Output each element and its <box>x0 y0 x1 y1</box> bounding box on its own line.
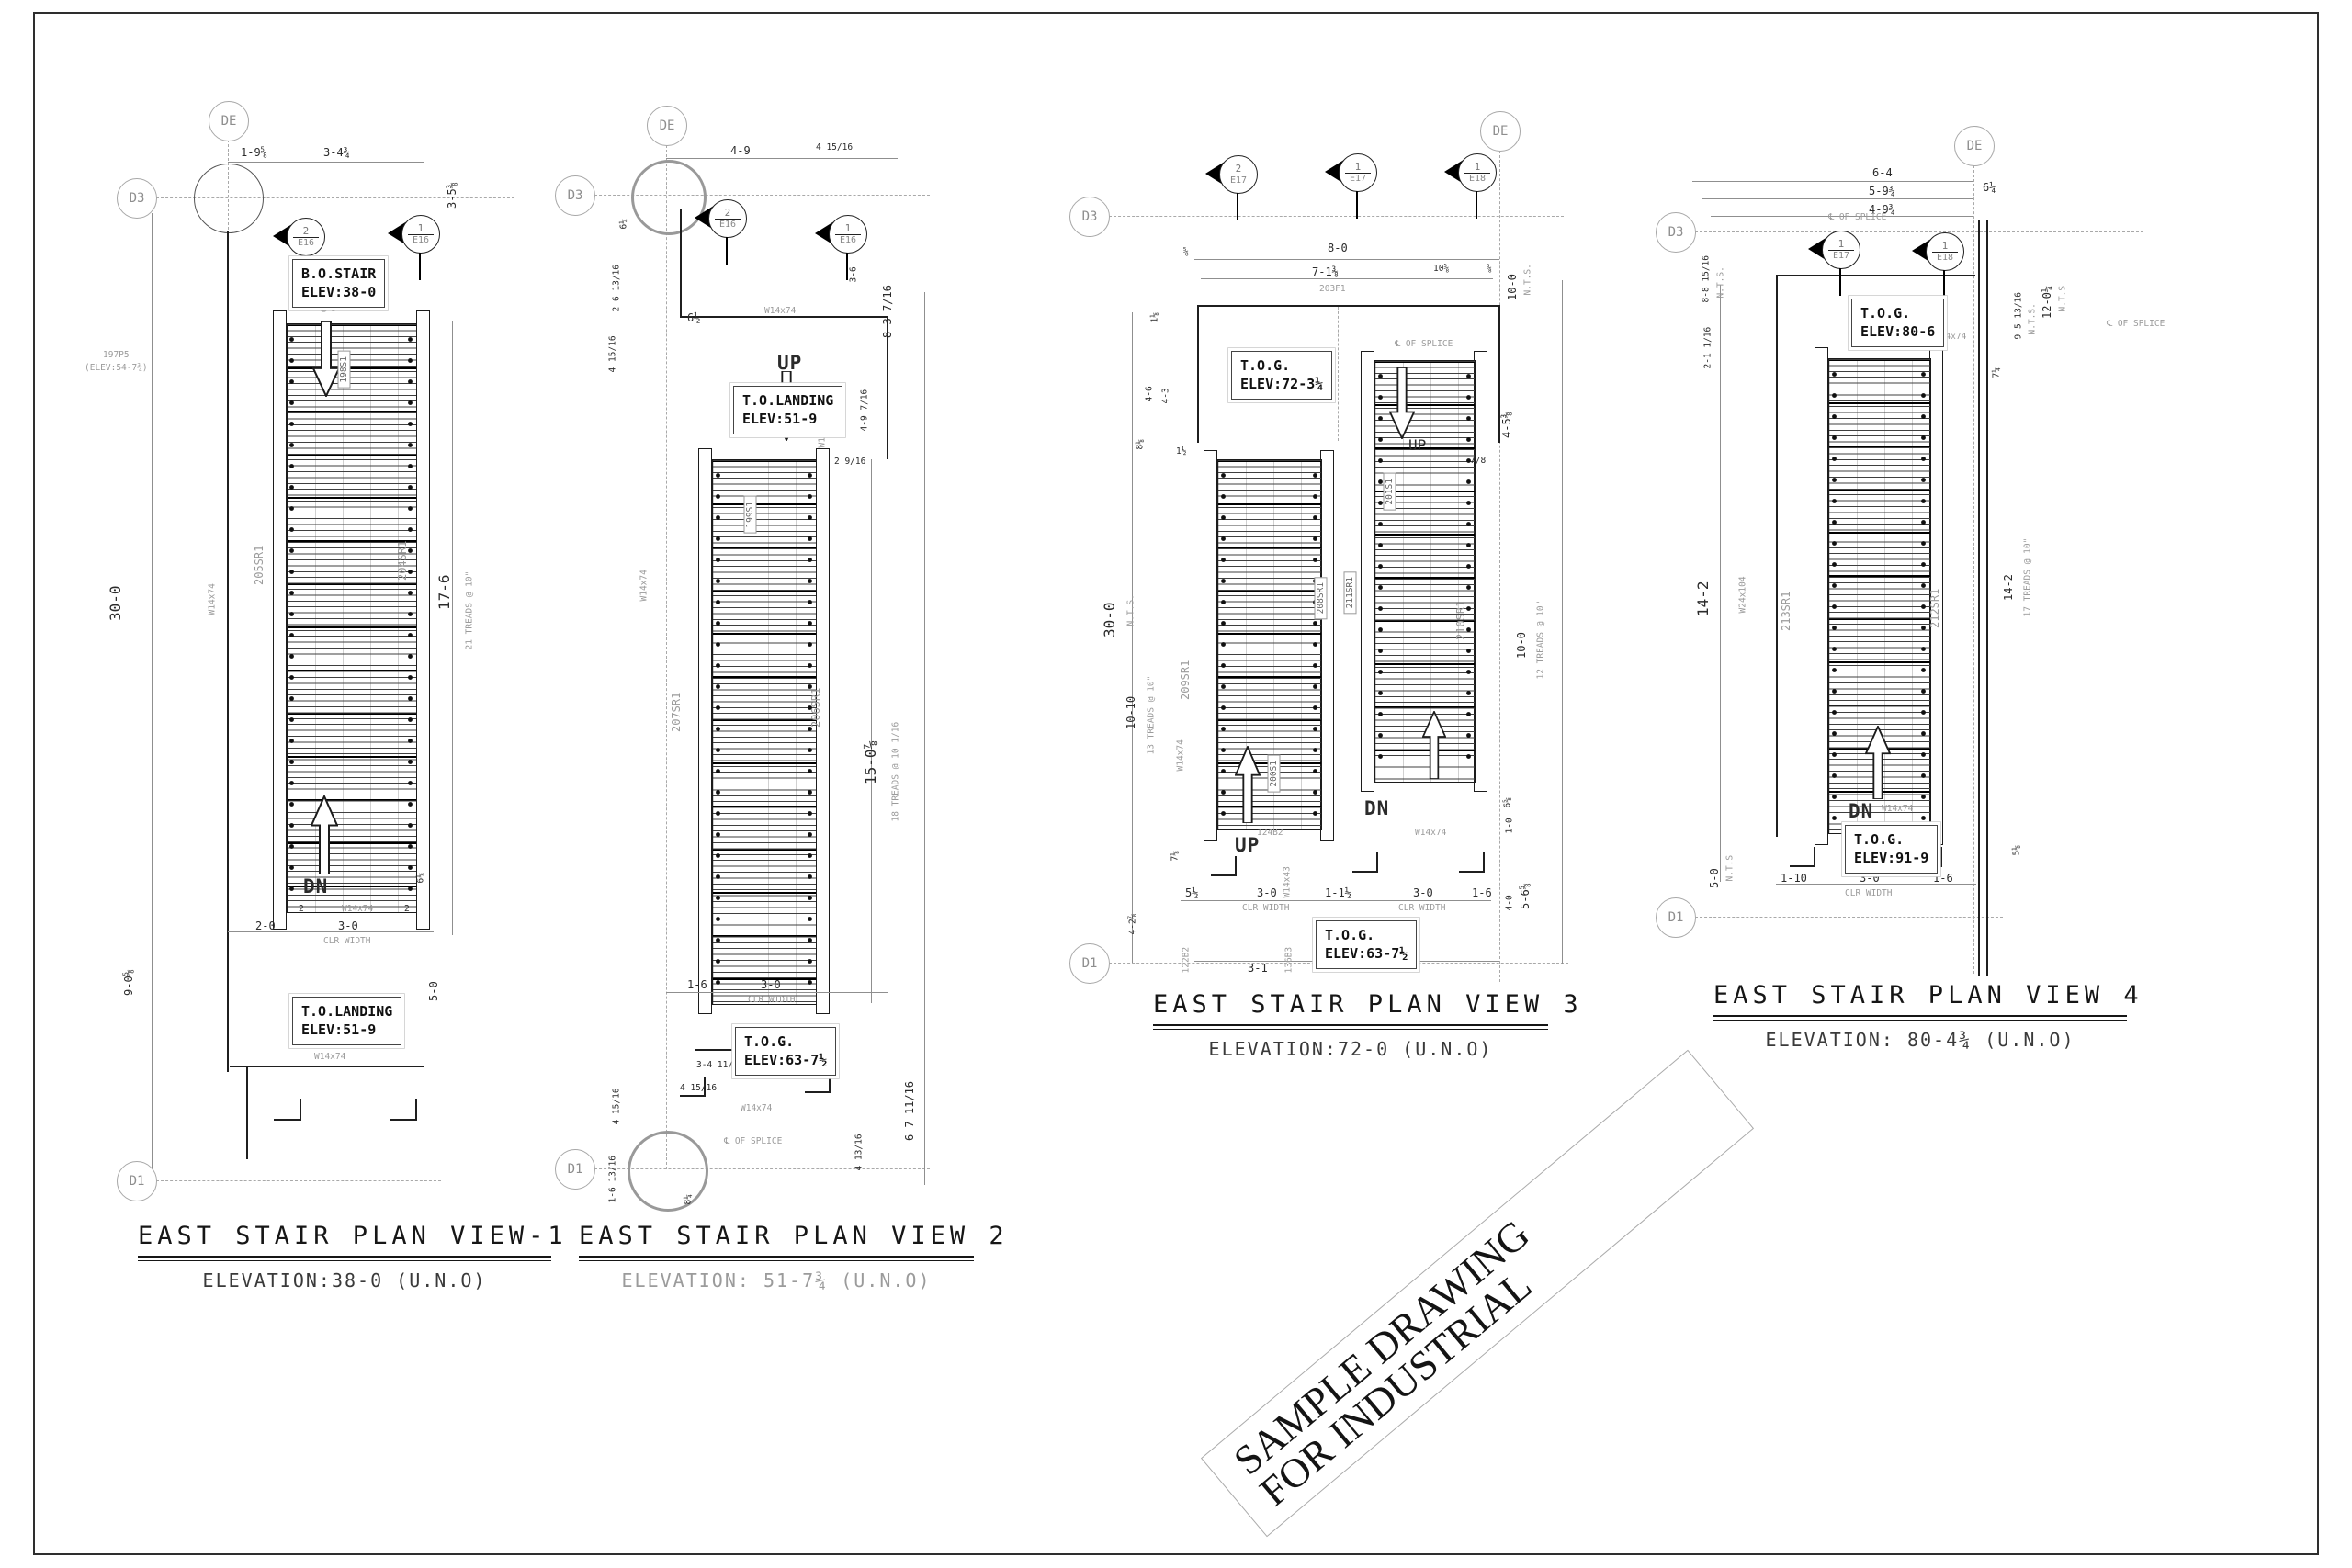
stair-stringer <box>1361 351 1374 792</box>
dim-label: CLR WIDTH <box>1398 904 1445 913</box>
member-tag: 199S1 <box>744 496 757 534</box>
dim-label: ℄ OF SPLICE <box>1395 340 1453 349</box>
stair-stringer <box>698 448 712 1014</box>
dim-label: W14x74 <box>1415 829 1446 838</box>
section-marker-icon: 1E18 <box>1912 231 1967 272</box>
up-arrow-icon <box>1865 726 1891 799</box>
stair-stringer <box>416 310 430 930</box>
dim-label: ⅝ <box>1487 265 1492 274</box>
dim-label: 5-0 <box>428 981 439 1001</box>
down-arrow-icon <box>1389 367 1415 439</box>
section-circle: 1E16 <box>829 215 867 254</box>
dim-label: 1-6 <box>1933 873 1953 884</box>
elevation-label-line1: T.O.G. <box>1860 304 1935 322</box>
dim-label: 210SR1 <box>1455 601 1466 640</box>
section-sheet: E16 <box>298 238 314 248</box>
section-number: 2 <box>1226 164 1252 175</box>
dim-label: 8-3 7/16 <box>882 285 893 338</box>
title-rule <box>579 1260 974 1261</box>
elevation-label-box: B.O.STAIRELEV:38-0 <box>292 259 385 308</box>
dim-label: 1-10 <box>1781 873 1807 884</box>
elevation-label-line1: T.O.G. <box>744 1032 827 1051</box>
dim-label: 5½ <box>1185 887 1198 898</box>
up-arrow-icon <box>1235 746 1261 823</box>
dim-label: DN <box>1849 802 1873 821</box>
section-sheet: E17 <box>1833 251 1849 261</box>
view-subtitle: ELEVATION:38-0 (U.N.O) <box>138 1269 551 1292</box>
dim-label: N.T.S. <box>2029 303 2038 334</box>
dim-label: 2 <box>404 905 410 914</box>
member-tag: 211SR1 <box>1344 571 1357 614</box>
elevation-label-box: T.O.G.ELEV:80-6 <box>1851 299 1944 347</box>
view4-title-block: EAST STAIR PLAN VIEW 4 ELEVATION: 80-4¾ … <box>1713 981 2127 1051</box>
beam-centerline <box>1338 307 1339 441</box>
dim-label: 2 <box>299 905 304 914</box>
stair-bolts <box>1465 366 1472 775</box>
extension-line <box>871 459 872 1003</box>
dim-label: 203F1 <box>1319 285 1346 294</box>
section-circle: 2E17 <box>1219 155 1258 194</box>
elevation-label-box: T.O.LANDINGELEV:51-9 <box>292 997 401 1045</box>
dim-label: 2-1 1/16 <box>1704 327 1713 369</box>
section-marker-icon: 1E16 <box>815 214 870 254</box>
dim-label: 3-4¾ <box>323 147 350 158</box>
title-rule <box>1153 1024 1548 1026</box>
title-rule <box>1153 1029 1548 1030</box>
section-circle: 1E16 <box>401 215 440 254</box>
elevation-label-line2: ELEV:63-7½ <box>744 1051 827 1069</box>
dim-label: W14x74 <box>1177 739 1186 771</box>
extension-line <box>1132 312 1133 963</box>
dim-label: ℄ OF SPLICE <box>1828 213 1886 222</box>
dimension-line <box>228 162 424 163</box>
dim-label: W14x74 <box>1882 805 1913 814</box>
dim-label: N.T.S. <box>1127 594 1136 626</box>
section-sheet: E18 <box>1937 253 1953 263</box>
dim-label: 1-6 <box>687 979 707 990</box>
dim-label: 4-3 <box>1162 388 1171 403</box>
dim-label: N.T.S. <box>1717 266 1726 298</box>
dim-label: 10-10 <box>1125 696 1136 729</box>
dim-label: 12 TREADS @ 10" <box>1537 601 1546 680</box>
section-number: 1 <box>1828 239 1855 251</box>
dim-label: 10⅝ <box>1433 265 1449 274</box>
elevation-label-line2: ELEV:80-6 <box>1860 322 1935 341</box>
dim-label: 5⅛ <box>2013 845 2022 855</box>
section-marker-icon: 1E17 <box>1808 230 1863 270</box>
grid-bubble-d3: D3 <box>555 175 595 216</box>
section-sheet: E18 <box>1469 174 1486 184</box>
elevation-label-line1: T.O.LANDING <box>301 1002 392 1021</box>
grid-centerline <box>1109 216 1564 217</box>
stair-stringer <box>1815 347 1828 845</box>
dim-label: 30-0 <box>1102 602 1117 637</box>
stair-flight <box>287 323 417 913</box>
dim-label: 1-9⅝ <box>241 147 267 158</box>
section-circle: 1E18 <box>1926 232 1964 271</box>
dim-label: UP <box>1408 438 1426 453</box>
dimension-line <box>1181 900 1491 901</box>
stair-bolts <box>288 329 295 906</box>
extension-line <box>1720 285 1721 882</box>
dim-label: 122B2 <box>1182 947 1192 974</box>
grid-bubble-d3: D3 <box>1656 212 1696 253</box>
dim-label: UP <box>1235 836 1260 855</box>
dim-label: 7-1⅜ <box>1312 266 1339 277</box>
elevation-label-line2: ELEV:72-3¼ <box>1240 375 1323 393</box>
dim-label: ⅝ <box>1183 248 1189 257</box>
dim-label: 7⅛ <box>1171 851 1181 861</box>
column-circle <box>628 1131 708 1212</box>
section-sheet: E16 <box>840 235 856 245</box>
stair-stringer <box>1320 450 1334 841</box>
grid-bubble-d3: D3 <box>117 178 157 219</box>
title-rule <box>138 1260 551 1261</box>
elevation-label-box: T.O.G.ELEV:91-9 <box>1845 825 1938 874</box>
dim-label: W24x104 <box>1739 576 1748 613</box>
section-sheet: E16 <box>413 235 429 245</box>
wall-line <box>1776 275 1778 837</box>
dim-label: 2 9/16 <box>834 457 865 467</box>
dim-label: 5-9¾ <box>1869 186 1895 197</box>
section-tail <box>846 253 848 280</box>
section-number: 1 <box>1345 162 1372 174</box>
elevation-label-line2: ELEV:51-9 <box>301 1021 392 1039</box>
grid-centerline <box>1973 165 1974 974</box>
extension-line <box>2018 303 2018 854</box>
drawing-sheet: 1-9⅝3-4¾197P5(ELEV:54-7¾)30-0W14x743-5⅜1… <box>0 0 2352 1568</box>
stair-stringer <box>1204 450 1217 841</box>
view2-title-block: EAST STAIR PLAN VIEW 2 ELEVATION: 51-7¾ … <box>579 1222 974 1292</box>
elevation-label-line1: T.O.G. <box>1854 830 1928 849</box>
dimension-line <box>1692 181 1973 182</box>
dim-label: 3-6 <box>850 266 859 282</box>
dim-label: 8-8 15/16 <box>1702 255 1712 302</box>
section-circle: 2E16 <box>287 218 325 256</box>
section-tail <box>419 253 421 280</box>
dim-label: 8¼ <box>684 1194 694 1204</box>
dim-label: 8-0 <box>1328 243 1348 254</box>
dim-label: 205SR1 <box>254 546 265 585</box>
dim-label: 6-7 11/16 <box>904 1081 915 1141</box>
dim-label: 1-0 <box>1506 818 1515 833</box>
view-title: EAST STAIR PLAN VIEW-1 <box>138 1222 551 1250</box>
elevation-label-line1: B.O.STAIR <box>301 265 376 283</box>
elevation-label-line2: ELEV:91-9 <box>1854 849 1928 867</box>
section-marker-icon: 2E16 <box>273 217 328 257</box>
view-subtitle: ELEVATION: 51-7¾ (U.N.O) <box>579 1269 974 1292</box>
dim-label: 1-6 <box>1472 887 1492 898</box>
dim-label: 10-0 <box>1507 274 1518 300</box>
wall-line <box>680 209 682 318</box>
title-rule <box>1713 1015 2127 1017</box>
section-number: 1 <box>1464 162 1491 174</box>
dim-label: 18 TREADS @ 10 1/16 <box>892 722 901 822</box>
member-tag: 200S1 <box>1268 755 1281 793</box>
wall-line <box>1197 305 1199 443</box>
stair-bolts <box>407 329 413 906</box>
elevation-label-line2: ELEV:38-0 <box>301 283 376 301</box>
elevation-label-box: T.O.LANDINGELEV:51-9 <box>733 386 842 434</box>
dim-label: 3-0 <box>338 920 358 931</box>
section-number: 2 <box>715 208 741 220</box>
beam-line <box>1986 220 1988 976</box>
dim-label: 3-0 <box>1860 873 1880 884</box>
extension-line <box>452 321 453 935</box>
dim-label: 4 15/16 <box>816 143 853 152</box>
dim-label: 7¼ <box>1993 367 2002 378</box>
dim-label: (ELEV:54-7¾) <box>85 364 148 373</box>
dim-label: W14x74 <box>741 1104 772 1113</box>
section-number: 1 <box>1932 241 1959 253</box>
stair-bolts <box>715 465 721 998</box>
grid-centerline <box>1499 151 1500 982</box>
dim-label: N.T.S. <box>1524 264 1533 295</box>
dim-label: 4-9 7/16 <box>861 389 870 432</box>
dim-label: W14x74 <box>764 307 796 316</box>
wall-line <box>227 231 229 1072</box>
dim-label: 2-0 <box>255 920 276 931</box>
stair-bolts <box>1377 366 1384 775</box>
dimension-line <box>1194 259 1499 260</box>
dim-label: 30-0 <box>108 585 123 621</box>
dim-label: 3-1 <box>1248 963 1268 974</box>
dim-label: 9-0⅝ <box>123 969 134 996</box>
view3-title-block: EAST STAIR PLAN VIEW 3 ELEVATION:72-0 (U… <box>1153 990 1548 1060</box>
column-circle <box>194 164 264 233</box>
dim-label: CLR WIDTH <box>323 937 370 946</box>
dim-label: 1-6 13/16 <box>609 1156 618 1202</box>
angle-bracket <box>390 1099 417 1121</box>
dim-label: 5-0 <box>1709 868 1720 888</box>
angle-bracket <box>1352 852 1378 873</box>
section-circle: 1E17 <box>1339 153 1377 192</box>
stair-bolts <box>1220 465 1227 823</box>
view-title: EAST STAIR PLAN VIEW 2 <box>579 1222 974 1250</box>
dim-label: 12-0¼ <box>2041 286 2052 319</box>
dim-label: 4-6 <box>1146 386 1155 401</box>
stair-bolts <box>1920 364 1927 827</box>
extension-line <box>1562 280 1563 964</box>
elevation-label-line2: ELEV:51-9 <box>742 410 833 428</box>
dim-label: 4-9 <box>730 145 751 156</box>
dim-label: 3-0 <box>761 979 781 990</box>
dim-label: 3-5⅜ <box>447 182 458 209</box>
wall-line <box>1197 305 1500 307</box>
section-sheet: E16 <box>719 220 736 230</box>
dimension-line <box>1702 198 1973 199</box>
title-rule <box>1713 1020 2127 1021</box>
wall-line <box>680 316 888 318</box>
grid-bubble-d3: D3 <box>1069 197 1110 237</box>
grid-bubble-de: DE <box>1480 111 1521 152</box>
dim-label: 1-1½ <box>1325 887 1351 898</box>
dim-label: 6-4 <box>1872 167 1893 178</box>
elevation-label-box: T.O.G.ELEV:63-7½ <box>735 1027 836 1076</box>
dim-label: W14x74 <box>314 1053 345 1062</box>
up-arrow-icon <box>1422 711 1446 779</box>
section-marker-icon: 2E17 <box>1205 154 1261 195</box>
stair-stringer <box>816 448 830 1014</box>
dim-label: 212SR1 <box>1929 589 1940 628</box>
section-sheet: E17 <box>1350 174 1366 184</box>
dim-label: 6¼ <box>1983 182 1996 193</box>
dim-label: 197P5 <box>103 351 130 360</box>
dimension-line <box>666 992 888 993</box>
section-circle: 1E17 <box>1822 231 1860 269</box>
dim-label: DN <box>1364 799 1389 818</box>
dim-label: 209SR1 <box>1180 660 1191 700</box>
elevation-label-box: T.O.G.ELEV:72-3¼ <box>1231 351 1332 400</box>
grid-bubble-de: DE <box>209 101 249 141</box>
extension-line <box>152 213 153 1180</box>
section-number: 2 <box>293 226 320 238</box>
dim-label: 1½ <box>1176 447 1186 457</box>
dim-label: 15-0⅞ <box>864 740 878 784</box>
dim-label: 2-6 13/16 <box>613 265 622 311</box>
grid-bubble-d1: D1 <box>555 1149 595 1190</box>
dim-label: 4-5⅜ <box>1501 412 1512 438</box>
dim-label: 4 13/16 <box>855 1134 865 1170</box>
dim-label: 136B3 <box>1285 947 1295 974</box>
dim-label: 21 TREADS @ 10" <box>466 571 475 650</box>
grid-centerline <box>156 1180 441 1181</box>
elevation-label-line1: T.O.G. <box>1325 926 1408 944</box>
view-subtitle: ELEVATION: 80-4¾ (U.N.O) <box>1713 1029 2127 1051</box>
dim-label: 204SR1 <box>397 541 408 581</box>
member-tag: 201S1 <box>1384 473 1396 511</box>
wall-line <box>246 1066 248 1159</box>
dim-label: 4-0 <box>1506 895 1515 910</box>
up-arrow-icon <box>311 795 338 874</box>
dim-label: 213SR1 <box>1781 592 1792 631</box>
stair-stringer <box>1474 351 1487 792</box>
dim-label: 4 15/16 <box>680 1084 717 1093</box>
dim-label: 14-2 <box>1696 581 1711 616</box>
stair-bolts <box>1312 465 1318 823</box>
dim-label: 13 TREADS @ 10" <box>1148 676 1157 755</box>
grid-centerline <box>666 145 667 1169</box>
section-tail <box>1943 270 1945 298</box>
view-subtitle: ELEVATION:72-0 (U.N.O) <box>1153 1038 1548 1060</box>
grid-bubble-de: DE <box>1954 126 1995 166</box>
elevation-label-line1: T.O.LANDING <box>742 391 833 410</box>
section-number: 1 <box>835 223 862 235</box>
dim-label: 9-5 13/16 <box>2015 292 2024 339</box>
dim-label: N.T.S <box>1726 855 1736 882</box>
grid-bubble-de: DE <box>647 106 687 146</box>
dim-label: W14x74 <box>209 583 218 615</box>
dim-label: CLR WIDTH <box>748 996 795 1005</box>
section-tail <box>726 237 728 265</box>
view-title: EAST STAIR PLAN VIEW 4 <box>1713 981 2127 1010</box>
elevation-label-box: T.O.G.ELEV:63-7½ <box>1316 920 1417 969</box>
section-marker-icon: 1E16 <box>388 214 443 254</box>
dim-label: UP <box>777 354 802 373</box>
elevation-label-line1: T.O.G. <box>1240 356 1323 375</box>
dim-label: 14-2 <box>2003 574 2014 601</box>
dim-label: 4-2⅞ <box>1129 914 1138 935</box>
angle-bracket <box>1459 852 1485 873</box>
grid-bubble-d1: D1 <box>117 1161 157 1201</box>
dim-label: 4 15/16 <box>613 1088 622 1124</box>
dim-label: W14x43 <box>1283 866 1293 897</box>
dim-label: 124B2 <box>1257 829 1283 838</box>
angle-bracket <box>1211 856 1237 876</box>
dim-label: ℄ OF SPLICE <box>2107 320 2165 329</box>
dim-label: 17-6 <box>437 574 452 610</box>
dim-label: 207SR1 <box>671 693 682 732</box>
section-sheet: E17 <box>1230 175 1247 186</box>
section-marker-icon: 2E16 <box>695 198 750 239</box>
title-rule <box>138 1256 551 1258</box>
dim-label: W14x74 <box>640 570 650 601</box>
section-tail <box>1476 191 1477 219</box>
dim-label: 1⅛ <box>1151 312 1160 322</box>
grid-bubble-d1: D1 <box>1656 897 1696 938</box>
member-tag: 198S1 <box>338 351 351 389</box>
dim-label: CLR WIDTH <box>1845 889 1892 898</box>
wall-line <box>230 1066 424 1067</box>
dim-label: 10-0 <box>1516 632 1527 659</box>
stair-stringer <box>273 310 287 930</box>
section-tail <box>1356 191 1358 219</box>
section-tail <box>1839 268 1841 296</box>
dim-label: 4 15/16 <box>609 335 618 372</box>
section-marker-icon: 1E18 <box>1444 152 1499 193</box>
view1-title-block: EAST STAIR PLAN VIEW-1 ELEVATION:38-0 (U… <box>138 1222 551 1292</box>
down-arrow-icon <box>312 321 340 397</box>
dim-label: 206SR1 <box>810 688 821 728</box>
member-tag: 208SR1 <box>1315 577 1328 619</box>
dim-label: W14x74 <box>342 905 373 914</box>
elevation-label-line2: ELEV:63-7½ <box>1325 944 1408 963</box>
wall-line <box>1776 275 1975 276</box>
dim-label: ℄ OF SPLICE <box>724 1137 782 1146</box>
dim-label: 3-0 <box>1413 887 1433 898</box>
extension-line <box>924 292 925 1185</box>
dim-label: 5-6⅝ <box>1520 883 1531 909</box>
stair-bolts <box>807 465 813 998</box>
section-circle: 2E16 <box>708 199 747 238</box>
section-tail <box>1237 193 1238 220</box>
section-circle: 1E18 <box>1458 153 1497 192</box>
view-title: EAST STAIR PLAN VIEW 3 <box>1153 990 1548 1019</box>
dim-label: 8⅛ <box>1136 439 1146 449</box>
dimension-line <box>1201 278 1493 279</box>
stair-flight <box>712 459 817 1005</box>
dim-label: 7/8 <box>1470 457 1486 466</box>
dim-label: 6½ <box>687 312 700 323</box>
beam-line <box>1978 220 1980 976</box>
section-marker-icon: 1E17 <box>1325 152 1380 193</box>
grid-centerline <box>1695 917 2003 918</box>
angle-bracket <box>274 1099 301 1121</box>
dimension-line <box>666 158 898 159</box>
dim-label: 3-0 <box>1257 887 1277 898</box>
dim-label: 6⅛ <box>417 873 426 883</box>
stair-bolts <box>1831 364 1837 827</box>
dim-label: 17 TREADS @ 10" <box>2024 538 2033 617</box>
title-rule <box>579 1256 974 1258</box>
dim-label: N.T.S <box>2059 286 2068 312</box>
section-number: 1 <box>408 223 435 235</box>
dim-label: DN <box>303 877 328 897</box>
dim-label: 6⅝ <box>1504 797 1513 807</box>
angle-bracket <box>1790 847 1815 867</box>
dim-label: CLR WIDTH <box>1242 904 1289 913</box>
dim-label: 6¼ <box>620 219 629 229</box>
